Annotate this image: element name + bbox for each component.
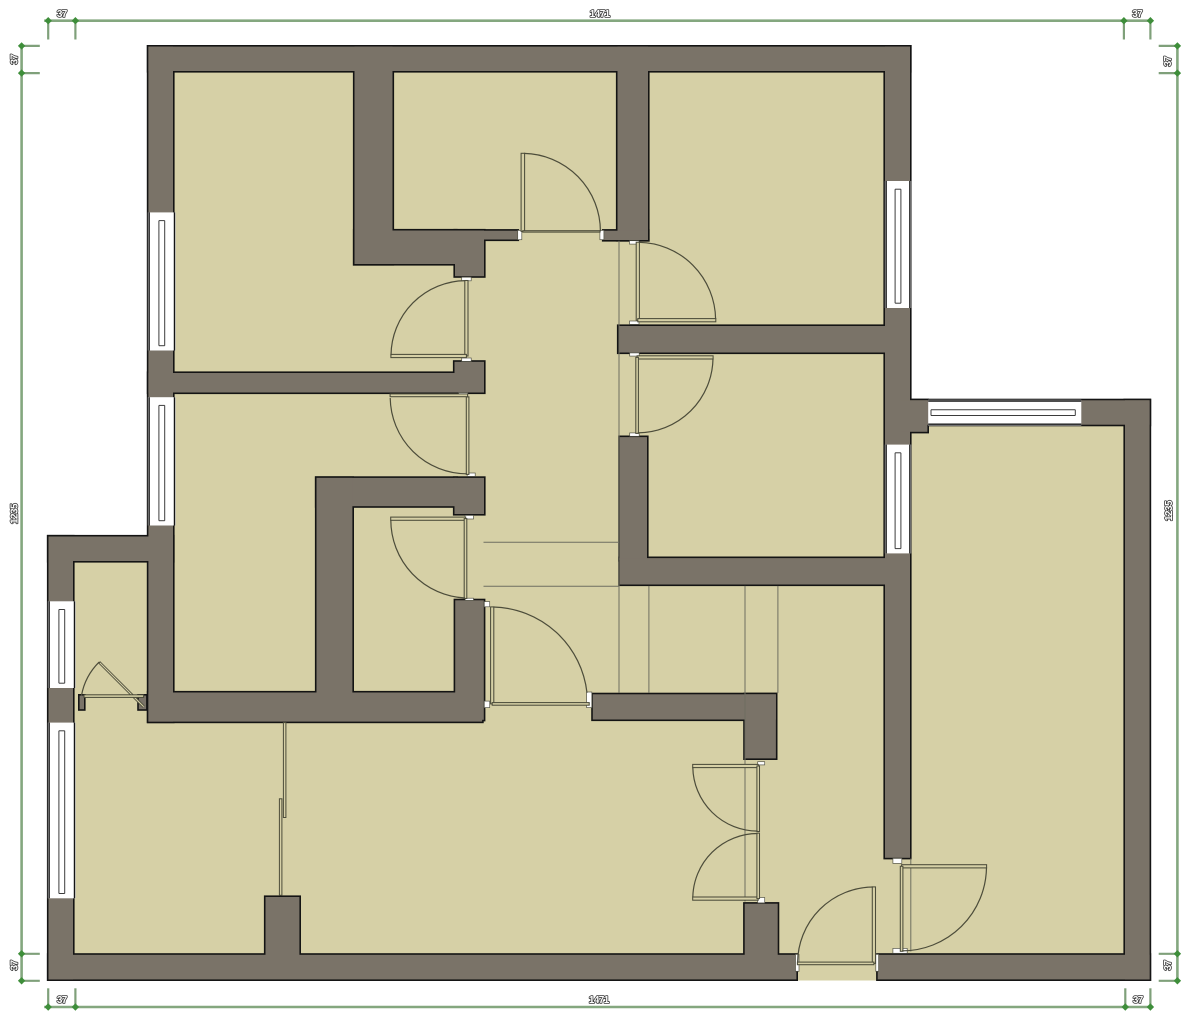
svg-text:1235: 1235 [1164, 500, 1175, 521]
svg-text:37: 37 [10, 54, 21, 65]
svg-text:37: 37 [1163, 960, 1174, 971]
svg-text:1235: 1235 [9, 503, 20, 524]
svg-text:1471: 1471 [589, 995, 610, 1006]
svg-text:37: 37 [57, 9, 68, 20]
svg-text:37: 37 [1132, 9, 1143, 20]
svg-text:37: 37 [1163, 56, 1174, 67]
svg-text:37: 37 [10, 960, 21, 971]
svg-text:1471: 1471 [590, 9, 611, 20]
svg-text:37: 37 [57, 995, 68, 1006]
svg-text:37: 37 [1133, 995, 1144, 1006]
